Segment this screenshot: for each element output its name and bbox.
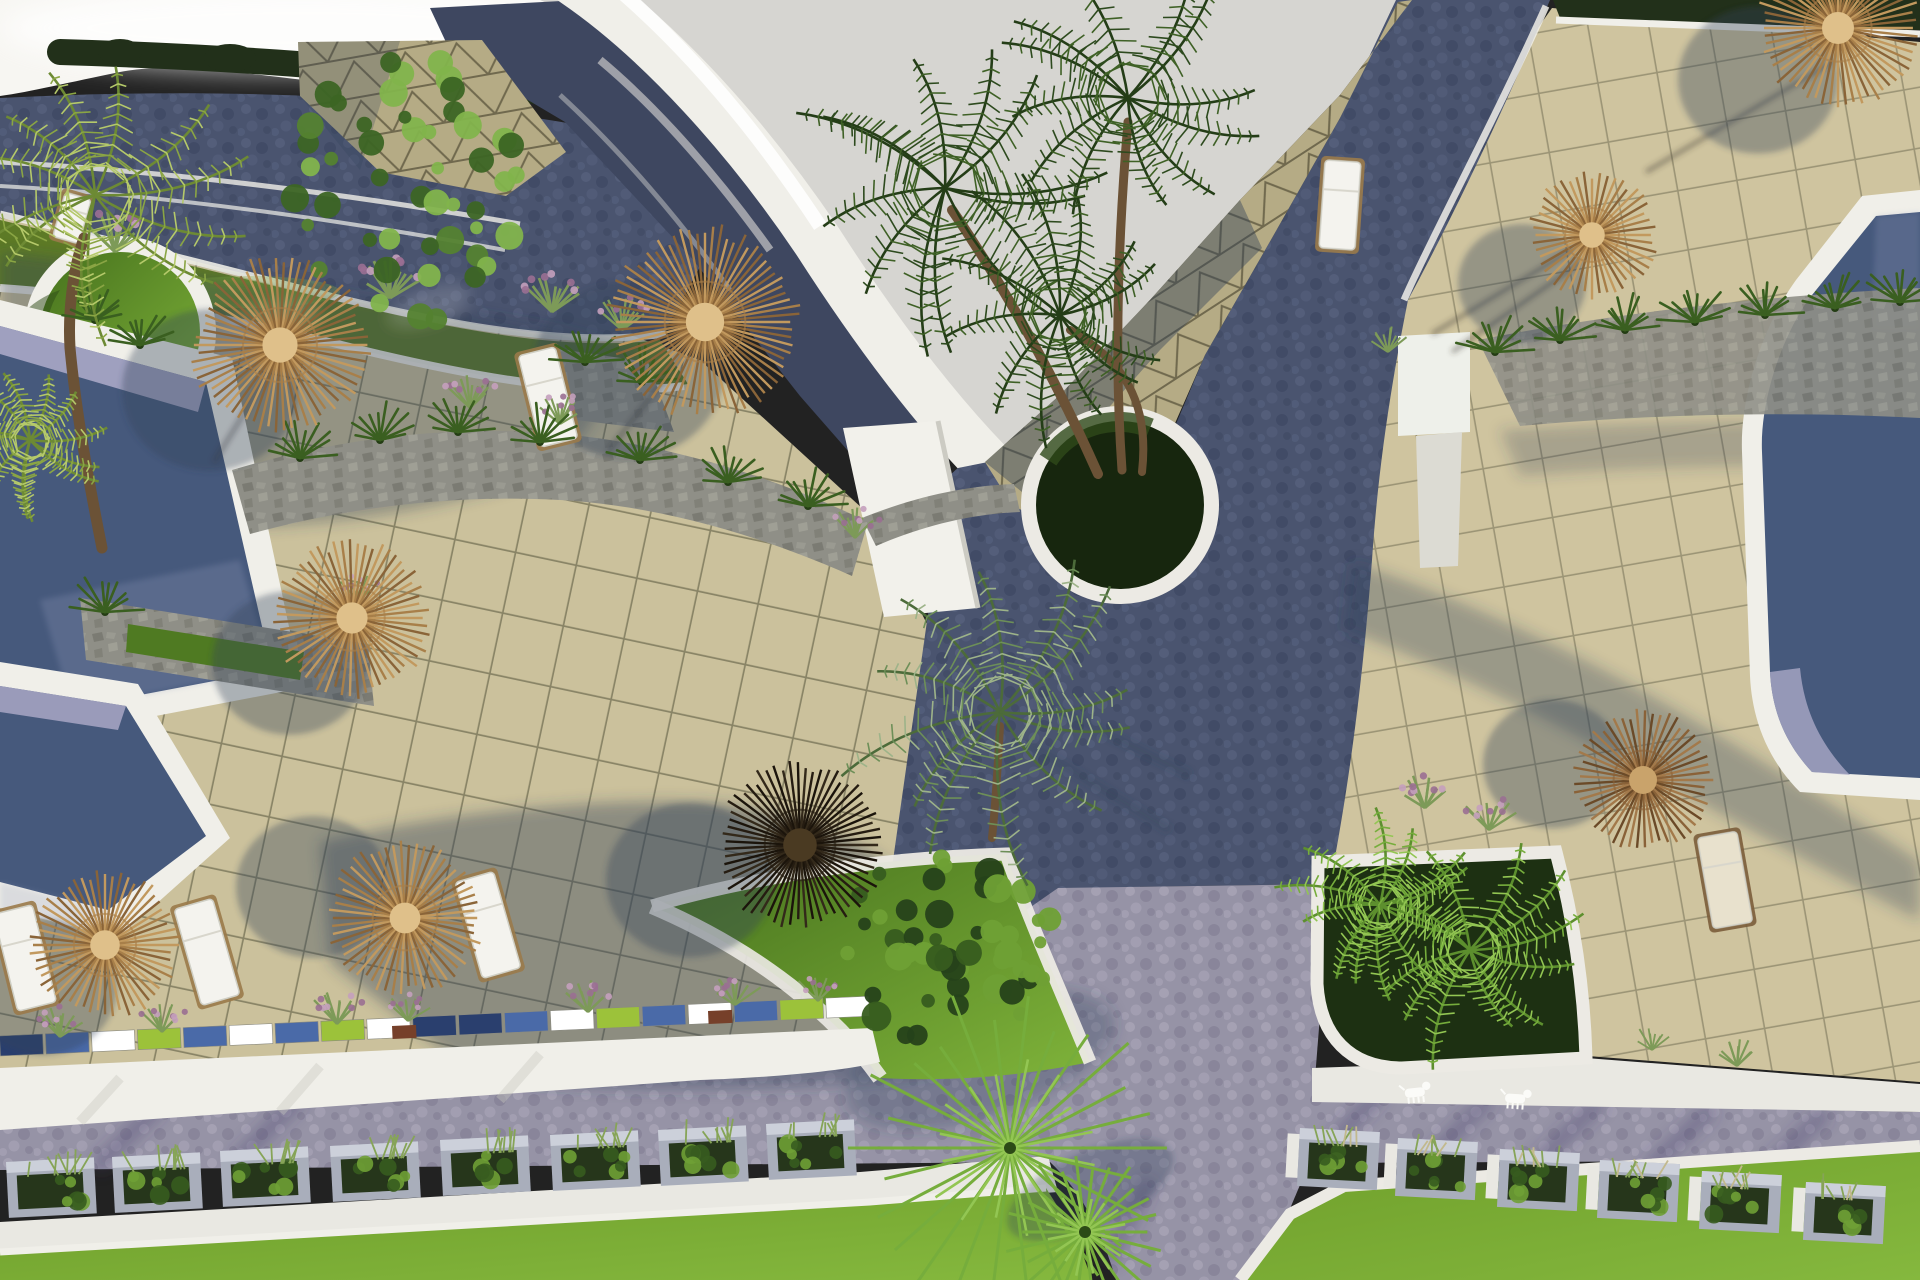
mosaic-tile	[91, 1030, 135, 1052]
sun-lounger	[1315, 156, 1366, 255]
mosaic-tile	[321, 1019, 365, 1041]
mosaic-tile	[458, 1013, 502, 1035]
brown-block	[392, 1025, 417, 1039]
brown-block	[708, 1010, 733, 1024]
mosaic-tile	[137, 1028, 181, 1050]
mosaic-tile	[642, 1005, 686, 1027]
mosaic-tile	[504, 1011, 548, 1033]
resort-aerial-scene	[0, 0, 1920, 1280]
mosaic-tile	[413, 1015, 457, 1037]
mosaic-tile	[596, 1007, 640, 1029]
mosaic-tile	[734, 1000, 778, 1022]
street-planter-box	[1585, 1156, 1680, 1222]
mosaic-tile	[229, 1024, 273, 1046]
mosaic-tile	[275, 1021, 319, 1043]
resort-aerial-render	[0, 0, 1920, 1280]
mosaic-tile	[183, 1026, 227, 1048]
mosaic-tile	[780, 998, 824, 1020]
